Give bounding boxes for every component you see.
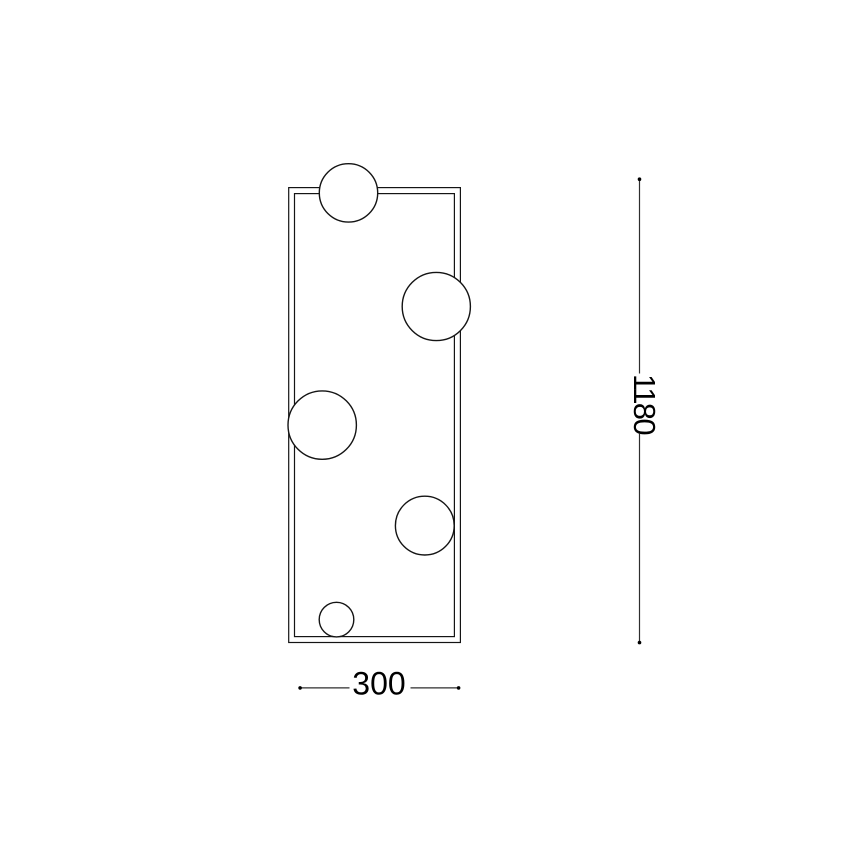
- svg-text:1180: 1180: [627, 374, 662, 435]
- svg-text:300: 300: [352, 666, 405, 702]
